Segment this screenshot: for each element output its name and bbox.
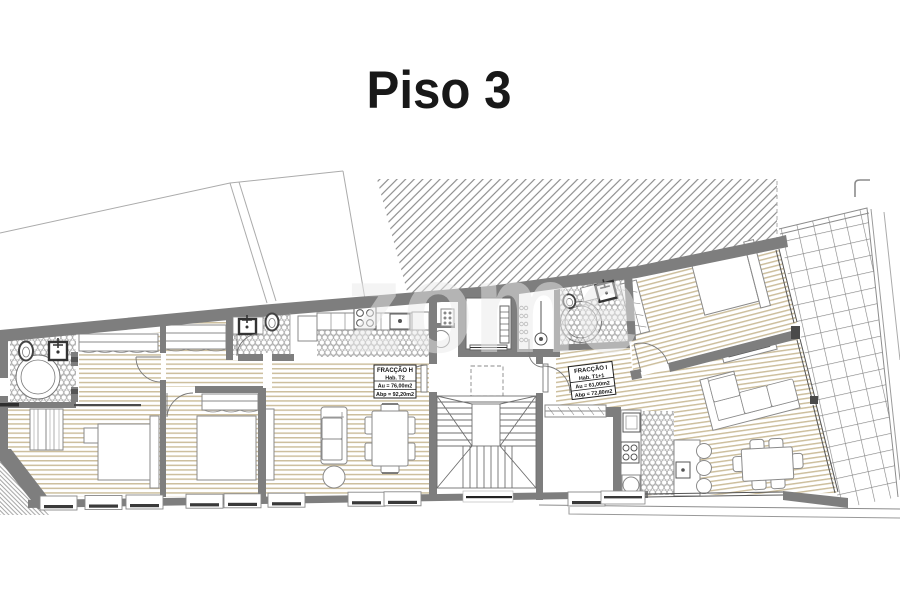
svg-text:Abp = 92,20m2: Abp = 92,20m2 <box>376 392 414 398</box>
svg-text:Piso 3: Piso 3 <box>367 61 512 120</box>
svg-text:Au = 76,00m2: Au = 76,00m2 <box>378 384 413 390</box>
svg-text:zome: zome <box>345 234 640 380</box>
